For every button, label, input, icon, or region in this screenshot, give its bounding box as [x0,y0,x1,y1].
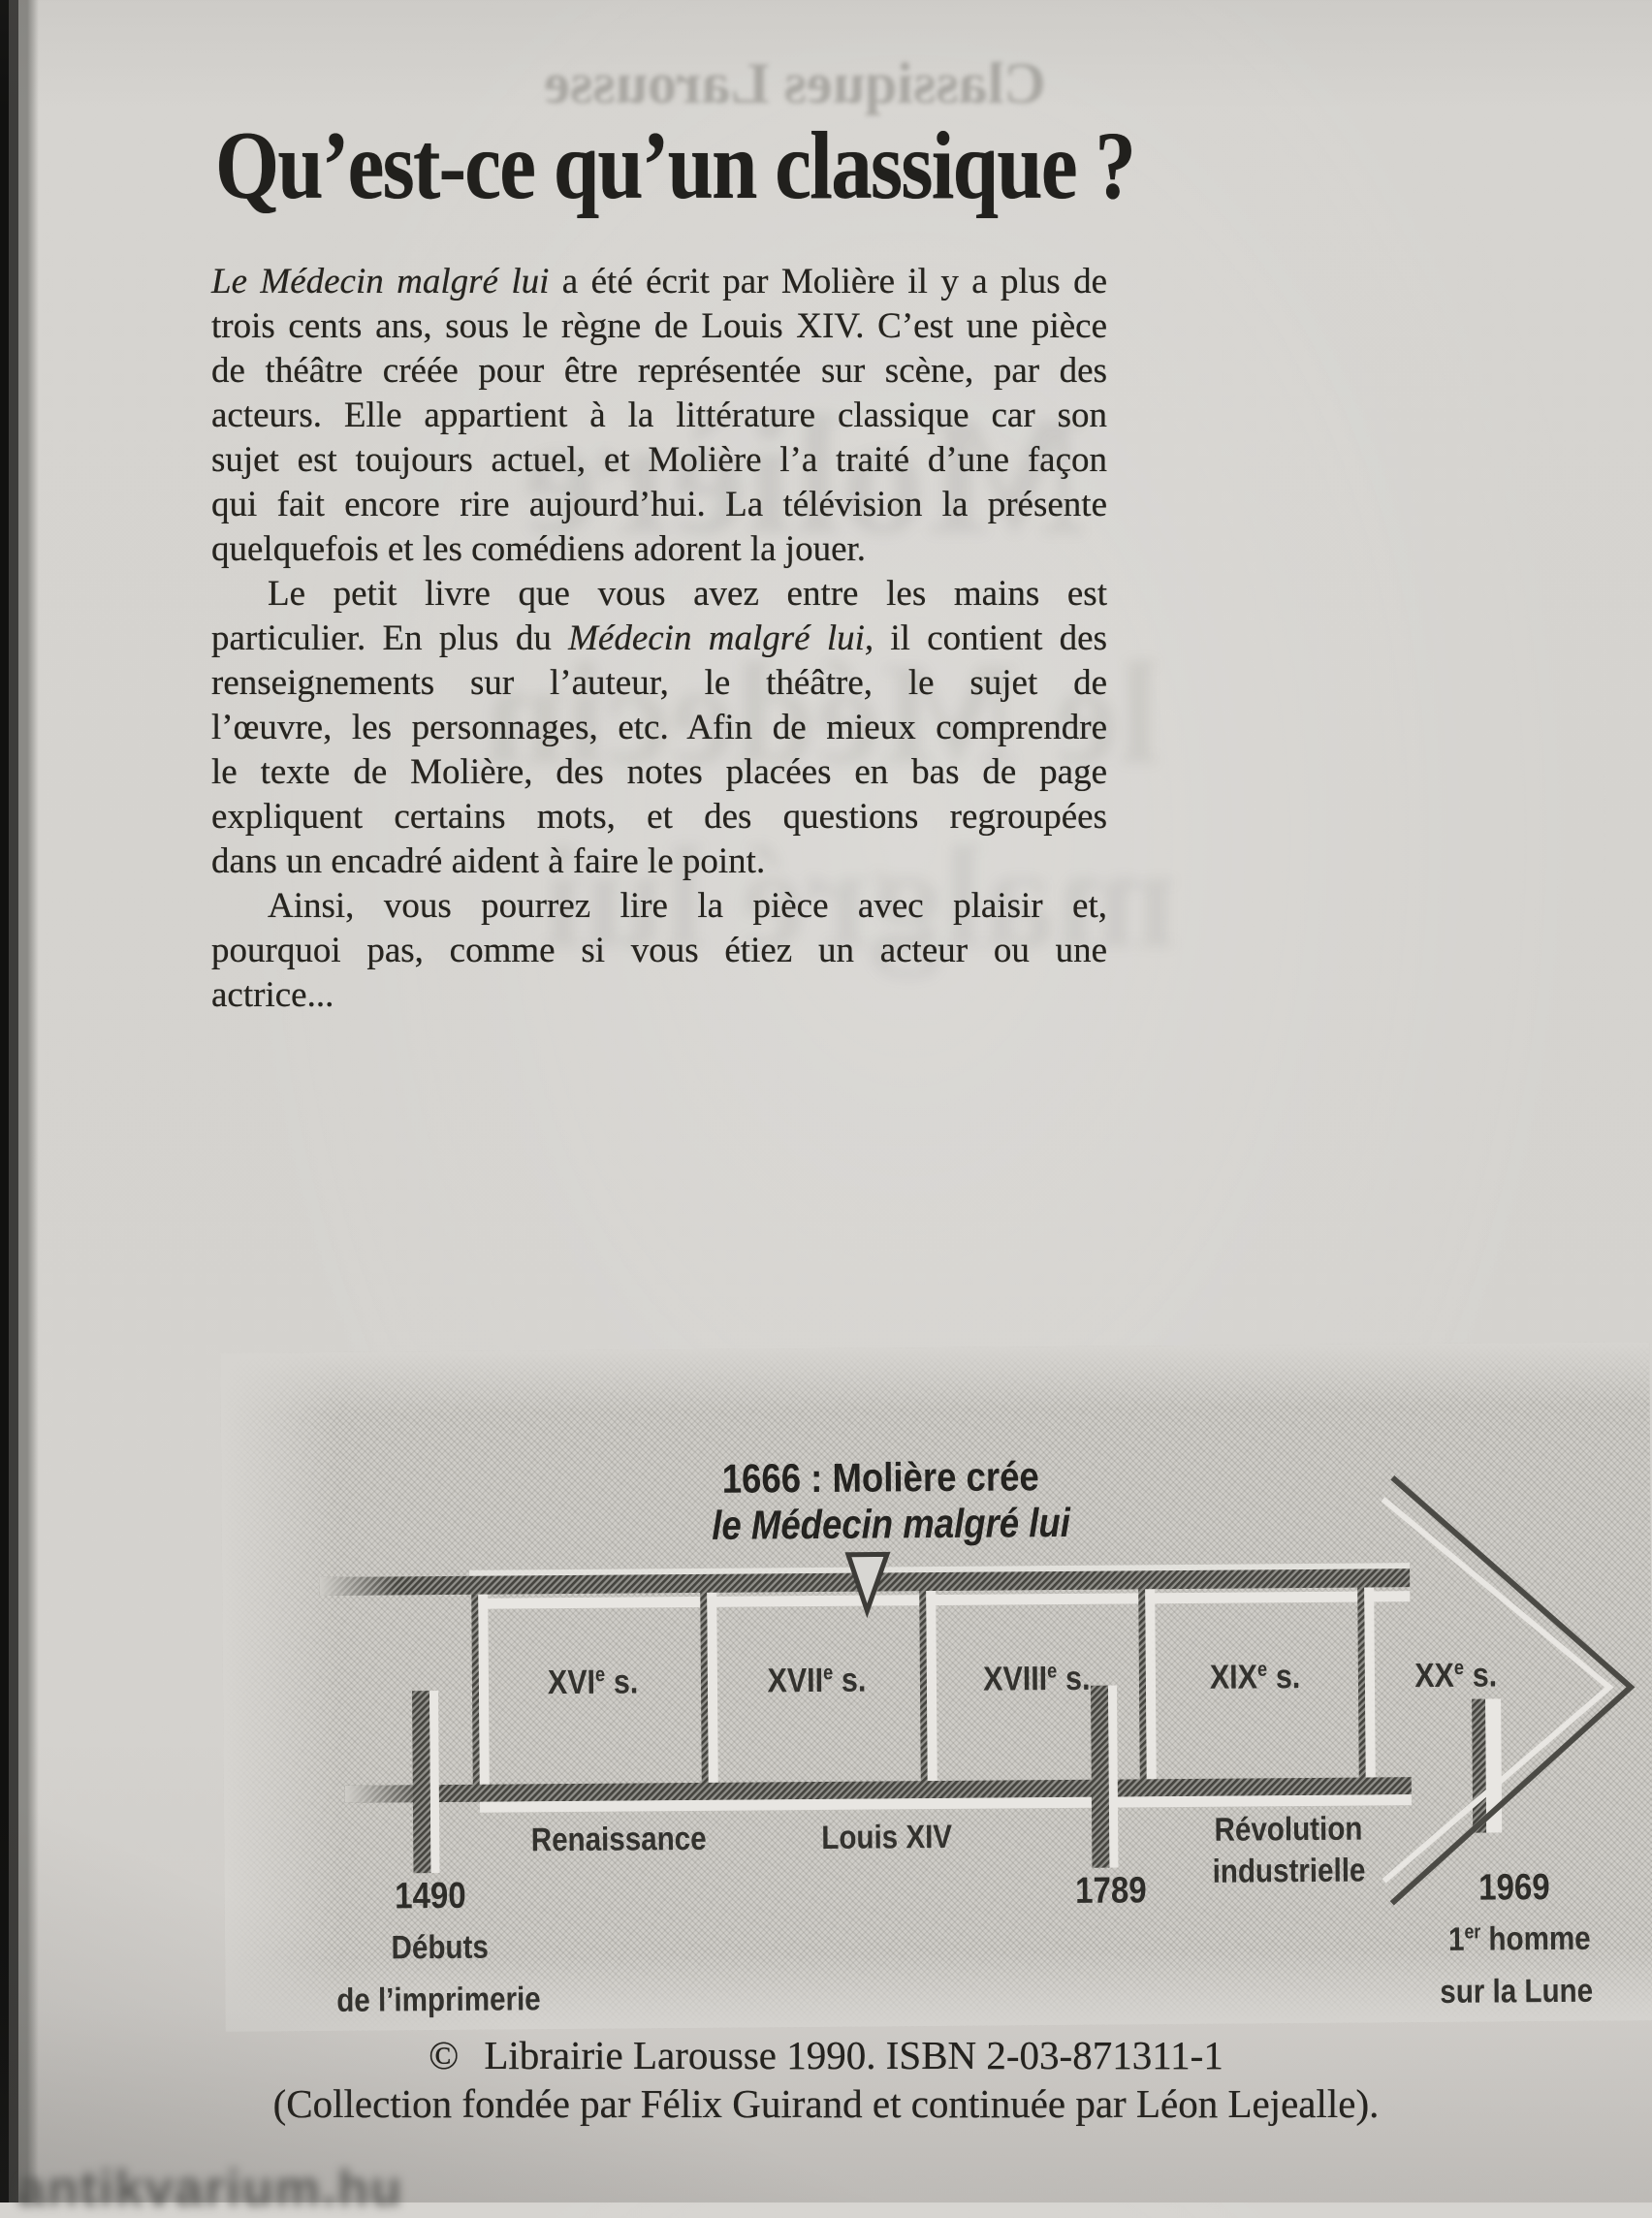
text-line: trois cents ans, sous le règne de Louis … [211,304,1107,349]
event-label-line2: le Médecin malgré lui [639,1499,1143,1549]
timeline-illustration: 1666 : Molière crée le Médecin malgré lu… [220,1342,1652,2032]
text-line: de théâtre créée pour être représentée s… [211,349,1107,394]
era-label-louis-xiv: Louis XIV [779,1819,993,1858]
scanned-book-page: { "page": { "title": "Qu’est-ce qu’un cl… [0,0,1652,2202]
tick-1789 [1091,1686,1118,1868]
century-label-17: XVIIes. [720,1661,914,1701]
text-line: expliquent certains mots, et des questio… [211,795,1107,840]
year-label-1789: 1789 [1032,1870,1188,1913]
text-line: Le petit livre que vous avez entre les m… [211,572,1107,617]
text-line: acteurs. Elle appartient à la littératur… [211,394,1107,438]
footer-collection: (Collection fondée par Félix Guirand et … [0,2080,1652,2127]
text-line: particulier. En plus du Médecin malgré l… [211,617,1107,661]
year-label-1969: 1969 [1436,1867,1591,1910]
text-line: actrice... [211,973,1107,1018]
tick-1969 [1472,1698,1502,1832]
copyright-icon: © [429,2033,459,2077]
century-label-19: XIXes. [1159,1658,1352,1698]
caption-1969-line2: sur la Lune [1381,1972,1652,2012]
page-title: Qu’est-ce qu’un classique ? [215,110,1297,221]
century-label-20: XXes. [1359,1656,1553,1696]
text-line: sujet est toujours actuel, et Molière l’… [211,438,1107,483]
footer-copyright: ©Librairie Larousse 1990. ISBN 2-03-8713… [0,2032,1652,2078]
text-line: quelquefois et les comédiens adorent la … [211,527,1107,572]
century-label-16: XVIes. [496,1663,690,1703]
book-spine-shadow [0,0,39,2202]
caption-1969-line1: 1er homme [1383,1919,1652,1959]
text-line: Le Médecin malgré lui a été écrit par Mo… [211,260,1107,304]
text-line: l’œuvre, les personnages, etc. Afin de m… [211,706,1107,750]
text-line: dans un encadré aident à faire le point. [211,840,1107,884]
era-label-revolution-industrielle: Révolutionindustrielle [1182,1810,1396,1891]
year-label-1490: 1490 [353,1875,508,1917]
event-label-line1: 1666 : Molière crée [628,1452,1132,1503]
body-text: Le Médecin malgré lui a été écrit par Mo… [211,260,1107,1018]
century-label-18: XVIIIes. [939,1659,1133,1699]
caption-1490-line1: Débuts [304,1928,576,1968]
era-label-renaissance: Renaissance [512,1821,725,1860]
tick-1490 [412,1691,439,1873]
text-line: pourquoi pas, comme si vous étiez un act… [211,929,1107,973]
text-line: renseignements sur l’auteur, le théâtre,… [211,661,1107,706]
text-line: qui fait encore rire aujourd’hui. La tél… [211,483,1107,527]
boxes-top-highlight [478,1591,1410,1609]
text-line: Ainsi, vous pourrez lire la pièce avec p… [211,884,1107,929]
caption-1490-line2: de l’imprimerie [302,1980,574,2020]
text-line: le texte de Molière, des notes placées e… [211,750,1107,795]
bleedthrough-text-classiques-larousse: Classiques Larousse [456,50,1134,117]
seller-watermark: antikvarium.hu [17,2160,483,2218]
